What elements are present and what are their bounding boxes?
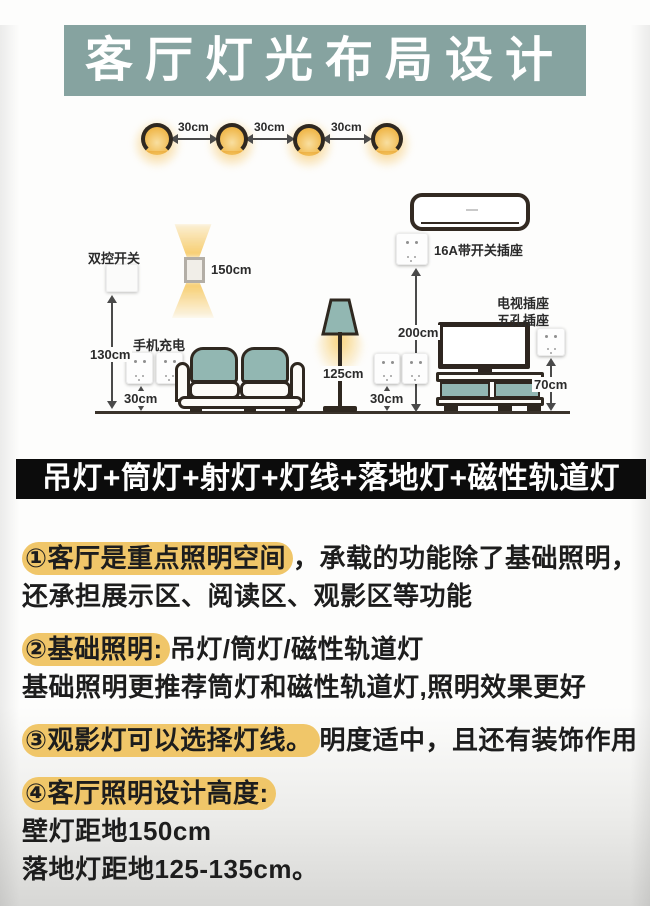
note-2: ②基础照明:吊灯/筒灯/磁性轨道灯 基础照明更推荐筒灯和磁性轨道灯,照明效果更好 (22, 630, 636, 706)
lamp-socket-icon (374, 353, 400, 384)
downlight-icon (371, 123, 403, 155)
floor-lamp-shade (320, 298, 360, 336)
note-3: ③观影灯可以选择灯线。明度适中，且还有装饰作用 (22, 721, 636, 759)
note-4-highlight: ④客厅照明设计高度: (22, 777, 276, 810)
note-2-highlight: ②基础照明: (22, 633, 170, 666)
ac-socket-label: 16A带开关插座 (434, 240, 523, 259)
wall-switch-icon (106, 264, 138, 292)
tv-socket-label-2: 五孔插座 (497, 310, 549, 329)
spacing-label: 30cm (178, 120, 209, 134)
tv-cabinet-bottom (436, 397, 544, 406)
floor-lamp-height-label: 125cm (321, 366, 365, 381)
note-2-line-1: ②基础照明:吊灯/筒灯/磁性轨道灯 (22, 630, 636, 668)
wall-lamp-icon (184, 257, 205, 283)
sofa-base (178, 396, 303, 409)
note-2-line-2: 基础照明更推荐筒灯和磁性轨道灯,照明效果更好 (22, 668, 636, 706)
spacing-label: 30cm (254, 120, 285, 134)
note-3-rest: 明度适中，且还有装饰作用 (320, 725, 638, 755)
note-1: ①客厅是重点照明空间，承载的功能除了基础照明， 还承担展示区、阅读区、观影区等功… (22, 539, 636, 615)
note-4-line-2: 壁灯距地150cm (22, 812, 636, 850)
spacing-arrow (247, 138, 293, 140)
page-title: 客厅灯光布局设计 (64, 25, 586, 96)
downlight-icon (293, 124, 325, 156)
tv-cabinet-top (436, 372, 544, 382)
sofa-socket-height-label: 30cm (122, 391, 159, 406)
spacing-arrow (172, 138, 216, 140)
tv-socket-height-label: 70cm (532, 377, 569, 392)
downlight-icon (141, 123, 173, 155)
notes-list: ①客厅是重点照明空间，承载的功能除了基础照明， 还承担展示区、阅读区、观影区等功… (0, 499, 650, 888)
ac-socket-height-label: 200cm (396, 325, 440, 340)
floor-lamp-base (323, 406, 357, 412)
lighting-layout-diagram: 30cm 30cm 30cm 16A带开关插座 200cm 双控开关 130cm… (0, 100, 650, 422)
note-3-highlight: ③观影灯可以选择灯线。 (22, 724, 320, 757)
wall-lamp-down-glow (170, 282, 216, 318)
downlight-icon (216, 123, 248, 155)
phone-charging-label: 手机充电 (133, 335, 185, 354)
lamp-types-banner: 吊灯+筒灯+射灯+灯线+落地灯+磁性轨道灯 (16, 459, 646, 499)
switch-height-label: 130cm (88, 347, 132, 362)
note-4-line-3: 落地灯距地125-135cm。 (22, 850, 636, 888)
lamp-socket-height-label: 30cm (368, 391, 405, 406)
sofa-back-cushion (241, 347, 289, 383)
note-1-line-1: ①客厅是重点照明空间，承载的功能除了基础照明， (22, 539, 636, 577)
lamp-socket-icon (402, 353, 428, 384)
wall-lamp-height-label: 150cm (209, 262, 253, 277)
sofa-back-cushion (190, 347, 238, 383)
spacing-arrow (324, 138, 370, 140)
note-1-highlight: ①客厅是重点照明空间 (22, 542, 293, 575)
spacing-label: 30cm (331, 120, 362, 134)
ac-socket-icon (396, 233, 428, 265)
ac-socket-height-arrow (415, 270, 417, 410)
note-2-rest: 吊灯/筒灯/磁性轨道灯 (170, 634, 424, 664)
double-switch-label: 双控开关 (88, 248, 140, 267)
note-1-line-2: 还承担展示区、阅读区、观影区等功能 (22, 577, 636, 615)
note-4: ④客厅照明设计高度: 壁灯距地150cm 落地灯距地125-135cm。 (22, 774, 636, 888)
air-conditioner-icon (410, 193, 530, 231)
tv-socket-icon (537, 328, 565, 356)
tv-icon (438, 322, 530, 369)
wall-lamp-up-glow (172, 224, 214, 257)
tv-cabinet-drawer (440, 382, 490, 398)
note-1-rest: ，承载的功能除了基础照明， (293, 543, 638, 573)
note-3-line-1: ③观影灯可以选择灯线。明度适中，且还有装饰作用 (22, 721, 636, 759)
note-4-line-1: ④客厅照明设计高度: (22, 774, 636, 812)
